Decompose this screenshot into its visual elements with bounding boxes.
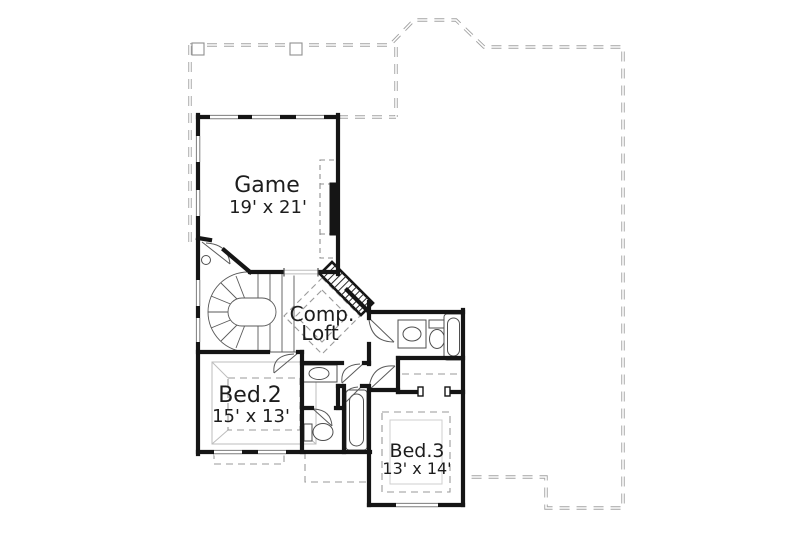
game-room-dimensions: 19' x 21' <box>229 197 307 218</box>
roof-outline <box>190 20 623 508</box>
floor-plan-canvas: Game 19' x 21' Comp. Loft Bed.2 15' x 13… <box>0 0 800 535</box>
window <box>214 449 242 456</box>
toilet-tank <box>429 320 445 328</box>
window <box>296 114 324 121</box>
porch-column <box>290 43 302 55</box>
cased-opening <box>284 268 318 277</box>
closet-door-notches <box>418 387 450 396</box>
porch-column <box>192 43 204 55</box>
bed2-door-swing <box>274 353 298 373</box>
window <box>195 318 202 342</box>
window <box>195 280 202 306</box>
comp-loft-label-line2: Loft <box>301 321 339 345</box>
toilet-fixture <box>313 424 333 441</box>
toilet-tank <box>304 424 312 441</box>
stair-newel <box>228 298 276 326</box>
window <box>195 190 202 216</box>
bathtub-basin <box>448 318 460 356</box>
window <box>252 114 280 121</box>
game-diagonal-wall <box>198 238 250 272</box>
bed2-room-label: Bed.2 <box>218 383 282 408</box>
bed2-room-dimensions: 15' x 13' <box>212 406 290 427</box>
toilet-fixture <box>430 330 445 349</box>
sink-fixture <box>309 368 329 380</box>
window <box>195 136 202 162</box>
bed3-door-swing <box>369 366 395 390</box>
bathtub-basin <box>350 394 364 446</box>
window <box>258 449 286 456</box>
stair-column <box>202 256 211 265</box>
sink-fixture <box>403 327 421 341</box>
floor-plan-drawing: Game 19' x 21' Comp. Loft Bed.2 15' x 13… <box>0 0 800 535</box>
roof-below-bath <box>305 452 366 482</box>
curved-staircase <box>208 272 298 352</box>
window <box>396 502 438 509</box>
game-room-label: Game <box>234 173 300 198</box>
bed3-room-dimensions: 13' x 14' <box>382 459 451 478</box>
bath3 <box>398 314 463 360</box>
bath2-door-swing <box>342 363 364 383</box>
bath3-door-swing <box>369 318 394 342</box>
window <box>210 114 238 121</box>
